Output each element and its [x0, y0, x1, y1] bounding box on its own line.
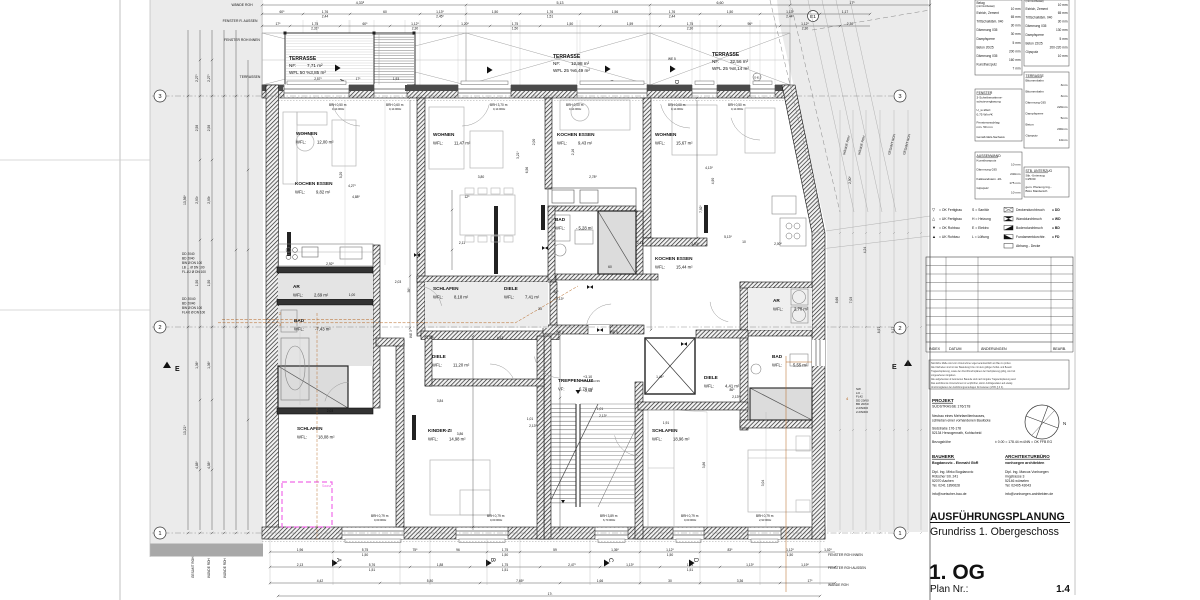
svg-text:Alle Klarheiten sind mit der B: Alle Klarheiten sind mit der Bauleitung …: [931, 366, 1013, 369]
svg-text:12⁵: 12⁵: [464, 195, 470, 199]
svg-text:Estrich, Zement: Estrich, Zement: [977, 11, 999, 15]
svg-text:WFL:: WFL:: [772, 363, 782, 368]
svg-text:2,16: 2,16: [571, 149, 575, 156]
svg-text:info@ruetscher-bau.de: info@ruetscher-bau.de: [932, 492, 967, 496]
svg-text:1,51: 1,51: [687, 568, 694, 572]
svg-text:WOHNEN: WOHNEN: [433, 132, 455, 137]
svg-text:1,51: 1,51: [547, 15, 554, 19]
svg-text:1,20⁵: 1,20⁵: [461, 22, 469, 26]
svg-text:13,21⁵: 13,21⁵: [183, 424, 187, 434]
svg-text:2,27⁵: 2,27⁵: [207, 73, 211, 81]
svg-text:2,50⁵: 2,50⁵: [848, 175, 852, 183]
svg-text:D-61: D-61: [754, 77, 760, 80]
svg-text:2,70 m²: 2,70 m²: [794, 307, 809, 312]
svg-text:BD 2040: BD 2040: [182, 257, 195, 261]
svg-text:TERRASSE: TERRASSE: [1026, 74, 1045, 78]
svg-text:Unstimmigkeiten der Ausführung: Unstimmigkeiten der Ausführungsunterlage…: [931, 386, 1004, 389]
svg-text:WFL:: WFL:: [655, 265, 665, 270]
svg-text:1,93: 1,93: [393, 77, 399, 81]
svg-text:schließen einer vorhandenen Ba: schließen einer vorhandenen Baulücke: [932, 419, 991, 423]
svg-text:96⁵: 96⁵: [747, 22, 753, 26]
svg-text:AUSSENWAND: AUSSENWAND: [977, 154, 1002, 158]
svg-text:2,00⁵: 2,00⁵: [774, 242, 782, 246]
svg-text:6,56: 6,56: [525, 167, 529, 174]
svg-text:7,65⁵: 7,65⁵: [516, 579, 524, 583]
svg-text:2,57⁵: 2,57⁵: [314, 77, 322, 81]
svg-text:5,76: 5,76: [369, 563, 376, 567]
svg-text:WFL:: WFL:: [295, 190, 305, 195]
svg-text:1,01: 1,01: [527, 417, 534, 421]
svg-text:AR: AR: [773, 298, 780, 303]
svg-text:1,13⁵: 1,13⁵: [786, 10, 794, 14]
svg-text:WOHNEN: WOHNEN: [296, 131, 318, 136]
svg-text:3,36: 3,36: [737, 579, 744, 583]
svg-text:DD 20/40: DD 20/40: [182, 297, 196, 301]
svg-text:2,31⁵: 2,31⁵: [311, 27, 319, 31]
svg-text:WFL:: WFL:: [297, 435, 307, 440]
svg-text:6,70 RDH: 6,70 RDH: [603, 518, 615, 522]
svg-text:Beton 22/25: Beton 22/25: [1026, 41, 1043, 45]
svg-text:WFL:: WFL:: [296, 140, 306, 145]
svg-text:Plan Nr.:: Plan Nr.:: [930, 584, 968, 595]
svg-text:0,00 RDH: 0,00 RDH: [374, 518, 386, 522]
svg-text:10: 10: [742, 240, 746, 244]
svg-text:1,01: 1,01: [597, 407, 604, 411]
svg-text:0,14 RDH: 0,14 RDH: [671, 107, 683, 111]
svg-text:= OK Fertigbau: = OK Fertigbau: [939, 208, 962, 212]
svg-text:4,90: 4,90: [711, 178, 715, 185]
svg-text:Trittschalldäm. 040: Trittschalldäm. 040: [977, 20, 1004, 24]
svg-text:Südstraße 176-178: Südstraße 176-178: [932, 427, 961, 431]
svg-text:60⁵: 60⁵: [279, 10, 285, 14]
svg-text:DD 2040: DD 2040: [182, 252, 195, 256]
svg-text:Abhang - Decke: Abhang - Decke: [1016, 244, 1040, 248]
svg-text:2,30: 2,30: [687, 27, 694, 31]
svg-text:2,47⁵: 2,47⁵: [568, 563, 576, 567]
svg-text:2,13⁵: 2,13⁵: [599, 414, 607, 418]
svg-text:Bogdanovic - Einmahl GbR: Bogdanovic - Einmahl GbR: [932, 461, 979, 465]
svg-text:9,82 m²: 9,82 m²: [316, 190, 331, 195]
svg-text:N: N: [1063, 421, 1066, 426]
svg-text:= UK Rohbau: = UK Rohbau: [939, 235, 960, 239]
svg-text:Beton 20/25: Beton 20/25: [977, 45, 994, 49]
svg-text:7,71 m²: 7,71 m²: [307, 63, 323, 68]
svg-text:2,13: 2,13: [297, 563, 304, 567]
svg-text:BAUHERR: BAUHERR: [932, 454, 955, 459]
svg-text:2,78⁵: 2,78⁵: [589, 175, 597, 179]
svg-text:Tel. 0241 1890628: Tel. 0241 1890628: [932, 484, 960, 488]
svg-text:9,43 m²: 9,43 m²: [578, 141, 593, 146]
svg-text:2,11: 2,11: [459, 241, 465, 245]
svg-text:Trittschalldäm. 040: Trittschalldäm. 040: [1026, 16, 1053, 20]
svg-text:3: 3: [898, 94, 901, 100]
svg-text:200mm: 200mm: [1057, 127, 1068, 131]
svg-text:WE 5: WE 5: [610, 330, 618, 334]
svg-text:5 mm: 5 mm: [1060, 37, 1068, 41]
svg-text:Dipl. Ing. Marcus Vonhoegen: Dipl. Ing. Marcus Vonhoegen: [1005, 470, 1049, 474]
svg-text:TERRASSE: TERRASSE: [712, 52, 740, 58]
svg-text:WFL:: WFL:: [428, 437, 438, 442]
svg-text:1,36⁵: 1,36⁵: [207, 360, 211, 368]
svg-text:KINDER-ZI: KINDER-ZI: [428, 428, 452, 433]
svg-text:8,97: 8,97: [877, 327, 881, 334]
svg-text:1: 1: [158, 531, 161, 537]
svg-text:33: 33: [538, 307, 542, 311]
svg-text:1.4: 1.4: [1056, 584, 1070, 595]
svg-text:2,03: 2,03: [327, 409, 334, 413]
svg-text:86⁵: 86⁵: [729, 388, 735, 392]
svg-text:1,56: 1,56: [612, 10, 619, 14]
svg-text:Wanddurchbruch: Wanddurchbruch: [1016, 217, 1042, 221]
svg-text:1: 1: [898, 531, 901, 537]
svg-text:7,03: 7,03: [849, 297, 853, 304]
svg-text:= WD: = WD: [1052, 217, 1061, 221]
svg-text:2: 2: [158, 325, 161, 331]
svg-text:Deckendurchbruch: Deckendurchbruch: [1016, 208, 1045, 212]
svg-text:1,50: 1,50: [787, 553, 794, 557]
svg-text:C: C: [607, 558, 613, 563]
svg-text:10 mm: 10 mm: [1011, 163, 1021, 167]
svg-text:Grundriss 1. Obergeschoss: Grundriss 1. Obergeschoss: [930, 526, 1059, 538]
svg-text:Dampfsperre: Dampfsperre: [977, 37, 996, 41]
svg-text:4,43: 4,43: [497, 336, 504, 340]
svg-text:30 mm: 30 mm: [1058, 20, 1068, 24]
svg-text:E: E: [175, 366, 180, 373]
svg-text:30 mm: 30 mm: [1011, 32, 1021, 36]
svg-text:1,76: 1,76: [547, 10, 554, 14]
svg-text:Dämmung 035: Dämmung 035: [977, 54, 998, 58]
svg-text:E1: E1: [810, 14, 816, 20]
svg-text:7,92⁵: 7,92⁵: [699, 204, 703, 212]
svg-text:WE 3: WE 3: [409, 330, 413, 338]
svg-text:WÄNDE ROH: WÄNDE ROH: [223, 557, 227, 578]
svg-text:Gipsputz: Gipsputz: [977, 186, 990, 190]
svg-text:220mm: 220mm: [1057, 105, 1068, 109]
svg-text:BEARB.: BEARB.: [1053, 347, 1066, 351]
svg-text:1,50: 1,50: [567, 22, 574, 26]
svg-text:4,27⁵: 4,27⁵: [348, 184, 356, 188]
svg-text:1,44⁵: 1,44⁵: [656, 375, 664, 379]
svg-text:163,54 ü.NN: 163,54 ü.NN: [583, 379, 600, 383]
svg-text:Estrich, Zement: Estrich, Zement: [1026, 7, 1048, 11]
svg-text:1,75: 1,75: [687, 22, 694, 26]
svg-text:Neubau eines Mehrfamilienhause: Neubau eines Mehrfamilienhauses,: [932, 414, 985, 418]
svg-text:60⁵: 60⁵: [362, 22, 368, 26]
svg-text:WFL:: WFL:: [433, 295, 443, 300]
svg-text:0,14 RDH: 0,14 RDH: [569, 107, 581, 111]
svg-text:4,33⁵: 4,33⁵: [356, 1, 365, 5]
svg-text:WÄNDE ROH: WÄNDE ROH: [231, 3, 253, 7]
svg-text:14,98 m²: 14,98 m²: [449, 437, 466, 442]
svg-text:1,51: 1,51: [502, 568, 509, 572]
svg-text:1,66: 1,66: [597, 579, 604, 583]
svg-text:vonhoegen architekten: vonhoegen architekten: [1005, 461, 1044, 465]
svg-text:KOCHEN ESSEN: KOCHEN ESSEN: [295, 181, 333, 186]
svg-text:INDEX: INDEX: [929, 347, 941, 351]
svg-text:1,13⁵: 1,13⁵: [626, 563, 634, 567]
svg-text:2,13⁵: 2,13⁵: [556, 297, 564, 301]
svg-text:4,13⁵: 4,13⁵: [705, 166, 713, 170]
svg-text:E = Elektro: E = Elektro: [972, 226, 989, 230]
svg-text:NF:: NF:: [289, 63, 296, 68]
svg-text:1,50: 1,50: [502, 553, 509, 557]
svg-text:schutzverglasung: schutzverglasung: [977, 100, 1001, 104]
svg-text:4,24: 4,24: [863, 247, 867, 254]
svg-text:Bitumenbahn: Bitumenbahn: [1026, 79, 1045, 83]
svg-text:2,44⁵: 2,44⁵: [786, 15, 794, 19]
svg-text:1,50: 1,50: [727, 10, 734, 14]
svg-text:Rütscher Str. 241: Rütscher Str. 241: [932, 475, 958, 479]
svg-text:3: 3: [158, 94, 161, 100]
svg-text:8,66: 8,66: [835, 297, 839, 304]
svg-text:= OK Rohbau: = OK Rohbau: [939, 226, 960, 230]
svg-text:1,13⁵: 1,13⁵: [436, 10, 444, 14]
svg-text:2,45⁵: 2,45⁵: [436, 15, 444, 19]
svg-text:AR: AR: [293, 284, 300, 289]
svg-text:65 mm: 65 mm: [1058, 11, 1068, 15]
svg-text:3,00⁵: 3,00⁵: [691, 242, 699, 246]
svg-text:52134 Herzogenrath, Kohlscheid: 52134 Herzogenrath, Kohlscheid: [932, 431, 982, 435]
svg-text:Bezugshöhe: Bezugshöhe: [932, 440, 951, 444]
svg-text:4,42⁵: 4,42⁵: [426, 336, 434, 340]
svg-text:1,36⁵: 1,36⁵: [611, 548, 619, 552]
svg-text:18,08 m²: 18,08 m²: [318, 435, 335, 440]
svg-text:200-220 mm: 200-220 mm: [1050, 45, 1068, 49]
svg-text:1,59: 1,59: [627, 22, 634, 26]
svg-text:= BD: = BD: [1052, 226, 1060, 230]
svg-text:WFL:: WFL:: [557, 141, 567, 146]
svg-text:Beton: Beton: [1026, 123, 1034, 127]
svg-text:Dampfsperre: Dampfsperre: [1026, 33, 1045, 37]
svg-text:WOHNEN: WOHNEN: [655, 132, 677, 137]
svg-text:2,13⁵: 2,13⁵: [732, 395, 740, 399]
svg-text:(mit Nutzbelast): (mit Nutzbelast): [1026, 0, 1044, 3]
svg-text:52070 Aachen: 52070 Aachen: [932, 479, 954, 483]
svg-text:2,27⁵: 2,27⁵: [195, 73, 199, 81]
svg-text:3mm: 3mm: [1061, 94, 1068, 98]
svg-text:WE 5: WE 5: [668, 57, 676, 61]
svg-text:WFL:: WFL:: [652, 437, 662, 442]
svg-text:WFL:: WFL:: [655, 141, 665, 146]
svg-text:NF:: NF:: [553, 61, 560, 66]
svg-text:AUSFÜHRUNGSPLANUNG: AUSFÜHRUNGSPLANUNG: [930, 510, 1065, 523]
svg-text:6,60: 6,60: [717, 1, 724, 5]
svg-text:WÄNDE ROH: WÄNDE ROH: [828, 583, 849, 587]
svg-text:PROJEKT: PROJEKT: [932, 398, 954, 403]
svg-text:BAD: BAD: [555, 217, 566, 222]
svg-text:2,30: 2,30: [412, 27, 419, 31]
svg-text:FENSTER: FENSTER: [977, 91, 993, 95]
svg-text:12,98 m²: 12,98 m²: [571, 61, 590, 66]
svg-text:Sämtliche Maße sind vom Untern: Sämtliche Maße sind vom Unternehmer eige…: [931, 362, 1012, 365]
svg-text:KOCHEN ESSEN: KOCHEN ESSEN: [655, 256, 693, 261]
svg-text:Das ausführende Unternehmen is: Das ausführende Unternehmen ist verpflic…: [931, 382, 1013, 385]
svg-text:STB. UNTERZUG: STB. UNTERZUG: [1026, 169, 1053, 173]
svg-text:Gipsputz: Gipsputz: [1026, 50, 1039, 54]
svg-text:86⁵: 86⁵: [553, 290, 559, 294]
svg-text:info@vonhoegen-architekten.de: info@vonhoegen-architekten.de: [1005, 492, 1053, 496]
svg-text:1,50: 1,50: [492, 10, 499, 14]
svg-text:S = Sanitär: S = Sanitär: [972, 208, 990, 212]
svg-text:5 mm: 5 mm: [1013, 41, 1021, 45]
svg-text:(mit Nutzbelast): (mit Nutzbelast): [977, 4, 995, 8]
svg-text:Gipsputz: Gipsputz: [1026, 134, 1039, 138]
svg-text:17⁵: 17⁵: [275, 22, 281, 26]
svg-text:NF:: NF:: [712, 59, 719, 64]
svg-text:WFL:: WFL:: [773, 307, 783, 312]
svg-text:WFL 25 %8,14 m²: WFL 25 %8,14 m²: [712, 66, 749, 71]
svg-text:5,55 m²: 5,55 m²: [793, 363, 808, 368]
svg-text:Gemäß GEG-Nachweis: Gemäß GEG-Nachweis: [977, 135, 1006, 139]
svg-text:D: D: [692, 558, 698, 563]
svg-text:1,50: 1,50: [362, 553, 369, 557]
svg-text:SCHLAFEN: SCHLAFEN: [297, 426, 323, 431]
svg-text:5,13: 5,13: [557, 1, 564, 5]
svg-text:2,44: 2,44: [669, 15, 676, 19]
svg-text:± 0.00 = 178.44 m üNN = OK FFB: ± 0.00 = 178.44 m üNN = OK FFB EG: [995, 440, 1052, 444]
svg-text:WE 4: WE 4: [556, 330, 564, 334]
svg-text:10mm: 10mm: [1059, 138, 1068, 142]
svg-text:1,76: 1,76: [669, 10, 676, 14]
svg-text:4,58⁵: 4,58⁵: [207, 460, 211, 468]
svg-text:1,75: 1,75: [502, 548, 509, 552]
svg-text:= FD: = FD: [1052, 235, 1060, 239]
svg-text:Büro Mardenich: Büro Mardenich: [1026, 189, 1048, 193]
svg-text:ARCHITEKTURBÜRO: ARCHITEKTURBÜRO: [1005, 454, 1050, 459]
svg-text:vorgesehenen Angaben.: vorgesehenen Angaben.: [931, 374, 956, 377]
svg-text:2-DN300: 2-DN300: [856, 410, 868, 414]
svg-text:-7,43 m²: -7,43 m²: [315, 327, 331, 332]
svg-text:BW Ø DN 100: BW Ø DN 100: [182, 261, 202, 265]
svg-text:FENSTER ROH INNEN: FENSTER ROH INNEN: [828, 553, 863, 557]
svg-text:11,20 m²: 11,20 m²: [453, 363, 470, 368]
svg-text:B: B: [489, 558, 495, 562]
svg-text:Kunstharzputz: Kunstharzputz: [977, 159, 997, 163]
svg-text:E: E: [892, 364, 897, 371]
svg-text:BD 20/40: BD 20/40: [182, 302, 196, 306]
svg-text:13,56⁵: 13,56⁵: [183, 194, 187, 204]
svg-text:5,20: 5,20: [339, 172, 343, 179]
svg-text:1,88: 1,88: [437, 563, 444, 567]
svg-text:1,50: 1,50: [195, 280, 199, 287]
svg-text:DIELE: DIELE: [704, 375, 718, 380]
svg-text:BAD: BAD: [772, 354, 783, 359]
svg-text:10 mm: 10 mm: [1011, 190, 1021, 194]
svg-text:WFL:: WFL:: [504, 295, 514, 300]
svg-text:Bodendurchbruch: Bodendurchbruch: [1016, 226, 1043, 230]
svg-text:2,90³: 2,90³: [207, 195, 211, 203]
svg-text:12,00 m²: 12,00 m²: [317, 140, 334, 145]
svg-text:130 mm: 130 mm: [1056, 28, 1068, 32]
svg-text:3,04: 3,04: [761, 480, 765, 487]
svg-text:2,30: 2,30: [802, 27, 809, 31]
svg-text:60: 60: [383, 10, 387, 14]
svg-text:TERRASSE: TERRASSE: [553, 54, 581, 60]
svg-text:ÄNDERUNGEN: ÄNDERUNGEN: [981, 347, 1007, 351]
svg-text:WÄNDE ROH: WÄNDE ROH: [207, 557, 211, 578]
svg-text:FENSTER R. AUSSEN: FENSTER R. AUSSEN: [223, 19, 258, 23]
svg-text:3,86: 3,86: [702, 462, 706, 469]
svg-text:Fundamentdurchbr.: Fundamentdurchbr.: [1016, 235, 1046, 239]
svg-text:2: 2: [898, 326, 901, 332]
svg-text:1,50: 1,50: [667, 553, 674, 557]
svg-text:FENSTER ROH INNEN: FENSTER ROH INNEN: [224, 38, 260, 42]
svg-text:KOCHEN ESSEN: KOCHEN ESSEN: [557, 132, 595, 137]
svg-text:3mm: 3mm: [1061, 83, 1068, 87]
svg-text:SÜDSTRASSE 176/178: SÜDSTRASSE 176/178: [932, 405, 970, 409]
svg-text:1,12⁵: 1,12⁵: [786, 548, 794, 552]
svg-text:160 mm: 160 mm: [1009, 58, 1021, 62]
svg-text:1,50: 1,50: [512, 27, 519, 31]
svg-text:LB ... Ø DN 100: LB ... Ø DN 100: [182, 266, 205, 270]
svg-text:SCHLAFEN: SCHLAFEN: [652, 428, 678, 433]
svg-text:3,21⁵: 3,21⁵: [516, 150, 520, 158]
svg-text:10 mm: 10 mm: [1058, 3, 1068, 7]
svg-text:- 5,28 m²: - 5,28 m²: [576, 226, 593, 231]
svg-text:Dämmung 035: Dämmung 035: [1026, 24, 1047, 28]
svg-text:75⁵: 75⁵: [412, 548, 418, 552]
svg-text:52146 würselen: 52146 würselen: [1005, 479, 1029, 483]
svg-text:H = Heizung: H = Heizung: [972, 217, 991, 221]
svg-text:WFL:: WFL:: [433, 141, 443, 146]
svg-text:1,75: 1,75: [312, 22, 319, 26]
svg-text:1,75: 1,75: [502, 563, 509, 567]
svg-text:15,44 m²: 15,44 m²: [676, 265, 693, 270]
svg-text:DIELE: DIELE: [432, 354, 446, 359]
svg-text:WFL:: WFL:: [555, 226, 565, 231]
svg-text:17⁵: 17⁵: [356, 77, 362, 81]
svg-text:0,75 W/m²K: 0,75 W/m²K: [977, 112, 994, 116]
svg-text:Kunstharzputz: Kunstharzputz: [977, 63, 998, 67]
svg-text:DATUM: DATUM: [949, 347, 962, 351]
svg-text:0,00 RDH: 0,00 RDH: [490, 518, 502, 522]
svg-text:FENSTER ROH AUSSEN: FENSTER ROH AUSSEN: [828, 566, 867, 570]
svg-text:C25/30: C25/30: [1026, 177, 1036, 181]
svg-text:175 mm: 175 mm: [1009, 181, 1021, 185]
svg-text:65 mm: 65 mm: [1011, 15, 1021, 19]
svg-text:4,88⁵: 4,88⁵: [195, 460, 199, 468]
svg-text:240mm: 240mm: [1010, 172, 1021, 176]
svg-text:Dämmung 035: Dämmung 035: [977, 28, 998, 32]
svg-text:11,47 m²: 11,47 m²: [454, 141, 471, 146]
svg-text:1. OG: 1. OG: [929, 561, 985, 584]
svg-text:ringstrasse 3: ringstrasse 3: [1005, 475, 1025, 479]
svg-text:Dämmung 035: Dämmung 035: [1026, 101, 1047, 105]
svg-text:1,51: 1,51: [369, 568, 376, 572]
svg-text:+2,98: +2,98: [583, 389, 592, 393]
svg-text:2,00: 2,00: [532, 139, 536, 146]
svg-text:1,13⁵: 1,13⁵: [746, 563, 754, 567]
svg-text:2,59: 2,59: [207, 125, 211, 132]
svg-text:WFL 25 %6,49 m²: WFL 25 %6,49 m²: [553, 68, 590, 73]
svg-text:4,42: 4,42: [317, 579, 324, 583]
svg-text:0,14 RDH: 0,14 RDH: [389, 107, 401, 111]
svg-text:2,93 RDH: 2,93 RDH: [759, 518, 771, 522]
svg-text:Dipl. Ing. Mirko Bogdanovic: Dipl. Ing. Mirko Bogdanovic: [932, 470, 974, 474]
svg-text:36⁵: 36⁵: [407, 287, 411, 293]
svg-text:GESAMT ROH: GESAMT ROH: [191, 556, 195, 578]
svg-text:FL-LÜ Ø DN 100: FL-LÜ Ø DN 100: [182, 270, 206, 274]
svg-text:3,80: 3,80: [478, 175, 485, 179]
svg-text:17⁵: 17⁵: [807, 579, 813, 583]
svg-text:0,14 RDH: 0,14 RDH: [731, 107, 743, 111]
svg-text:D: D: [673, 80, 679, 84]
svg-text:7,41 m²: 7,41 m²: [525, 295, 540, 300]
svg-text:BW Ø DN 100: BW Ø DN 100: [182, 306, 202, 310]
svg-text:30: 30: [668, 579, 672, 583]
svg-text:1,00: 1,00: [349, 293, 356, 297]
svg-text:2,92⁵: 2,92⁵: [326, 262, 334, 266]
